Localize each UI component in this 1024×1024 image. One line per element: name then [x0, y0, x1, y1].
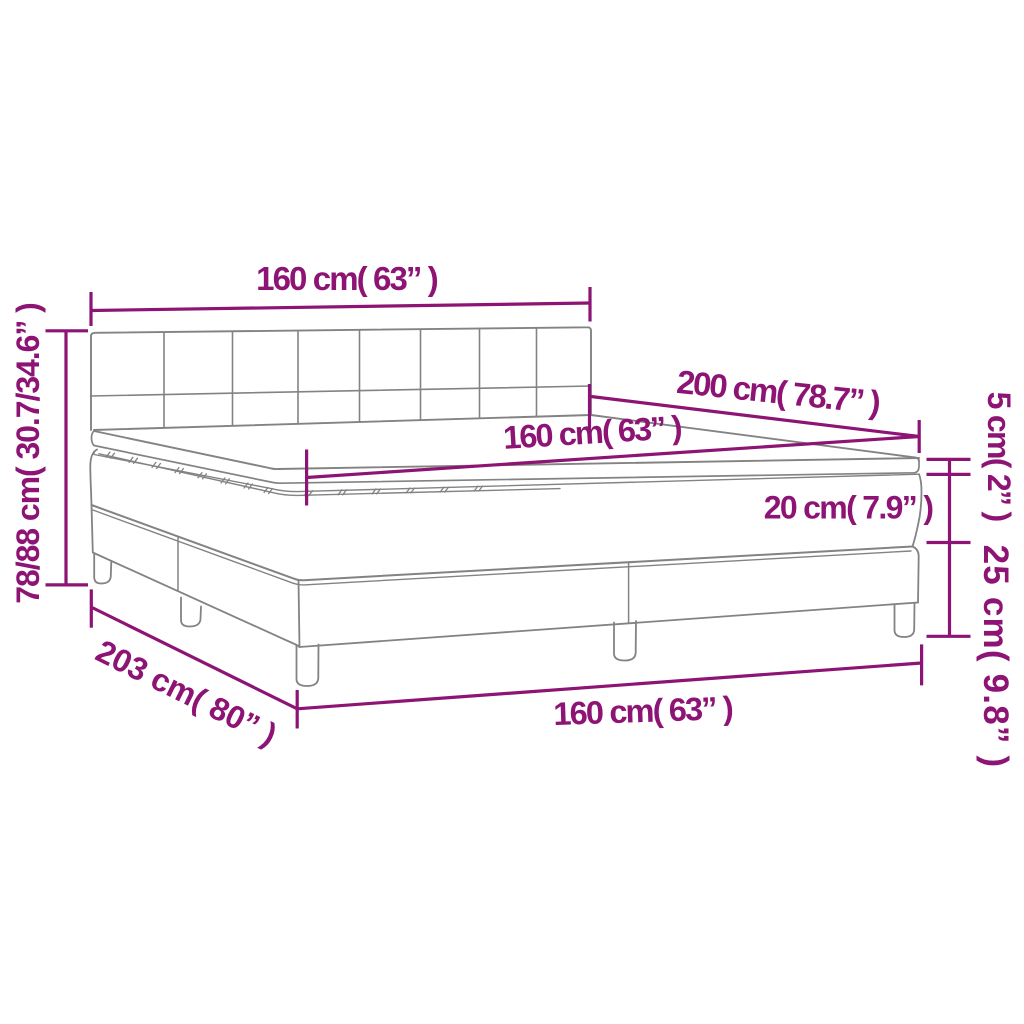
svg-text:160 cm( 63” ): 160 cm( 63” ): [256, 260, 438, 297]
svg-text:160 cm( 63” ): 160 cm( 63” ): [553, 690, 734, 732]
svg-text:5 cm( 2” ): 5 cm( 2” ): [981, 392, 1017, 522]
svg-text:25 cm( 9.8” ): 25 cm( 9.8” ): [976, 545, 1015, 769]
svg-text:203 cm( 80” ): 203 cm( 80” ): [90, 633, 282, 753]
svg-text:200 cm( 78.7” ): 200 cm( 78.7” ): [675, 363, 882, 421]
svg-text:78/88 cm( 30.7/34.6” ): 78/88 cm( 30.7/34.6” ): [10, 303, 46, 604]
svg-text:20 cm( 7.9” ): 20 cm( 7.9” ): [764, 490, 934, 526]
